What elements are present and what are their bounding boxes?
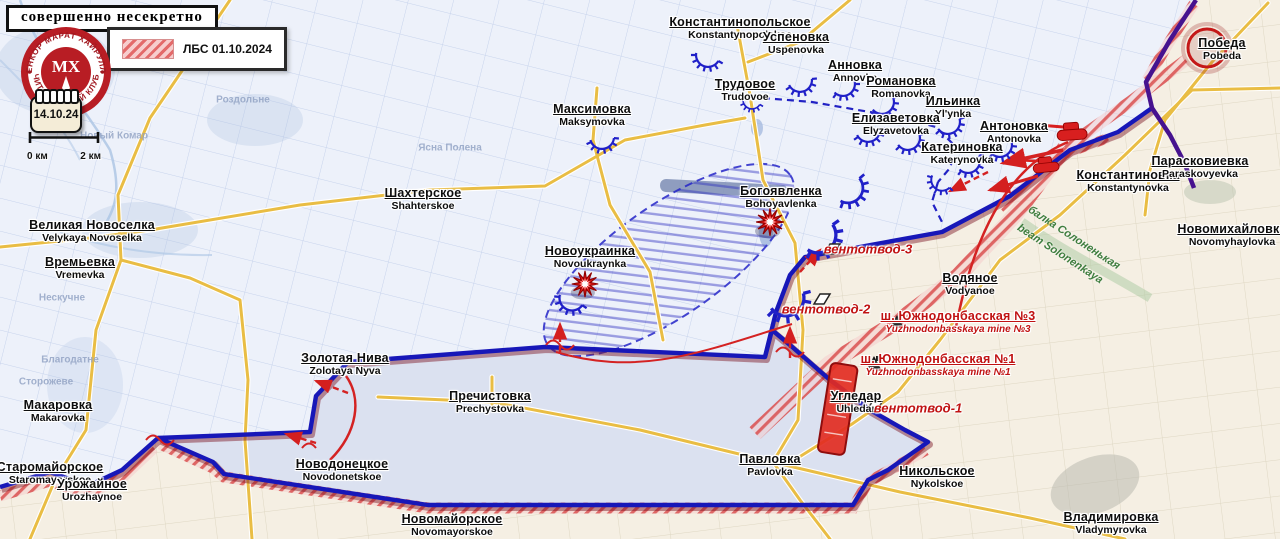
- pobeda-circle: [1188, 29, 1226, 67]
- date-text: 14.10.24: [34, 109, 79, 121]
- map-artwork: [0, 0, 1280, 539]
- scale-start-label: 0 км: [27, 151, 48, 162]
- map-scale-bar: 0 км 2 км: [27, 131, 101, 162]
- scale-end-label: 2 км: [80, 151, 101, 162]
- date-calendar-icon: 14.10.24: [30, 96, 82, 133]
- legend-label: ЛБС 01.10.2024: [183, 42, 272, 56]
- map-canvas: КонстантинопольскоеKonstantynopolskoeУсп…: [0, 0, 1280, 539]
- classification-text: совершенно несекретно: [21, 9, 203, 25]
- lbs-hatch-swatch: [122, 39, 174, 59]
- logo-monogram: МХ: [52, 57, 81, 76]
- frontline-legend: ЛБС 01.10.2024: [107, 27, 287, 71]
